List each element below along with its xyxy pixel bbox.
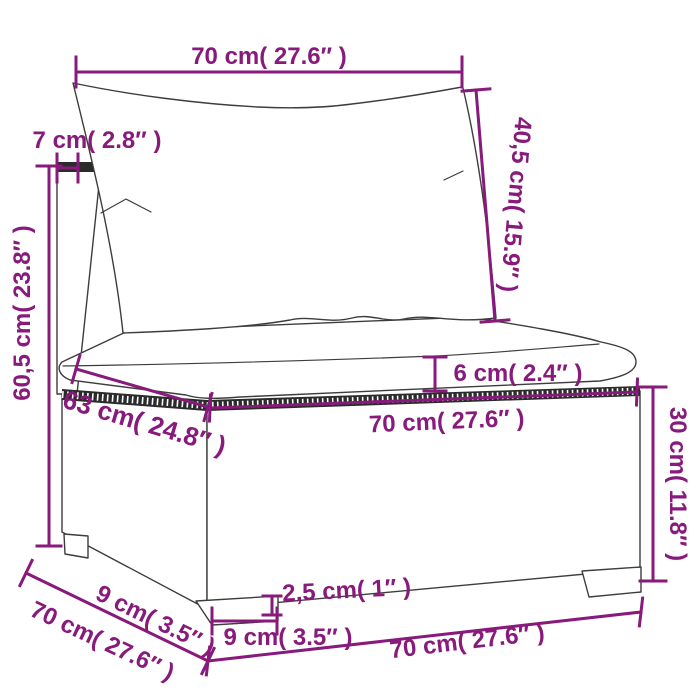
label-top-width: 70 cm( 27.6″ ) xyxy=(191,43,347,70)
back-cushion xyxy=(73,83,496,333)
label-seat-cushion-thickness: 6 cm( 2.4″ ) xyxy=(454,360,583,387)
label-back-cushion-length: 40,5 cm( 15.9″ ) xyxy=(494,116,536,293)
label-overall-height: 60,5 cm( 23.8″ ) xyxy=(9,225,36,401)
sofa-dimensions-figure: 70 cm( 27.6″ ) 7 cm( 2.8″ ) 60,5 cm( 23.… xyxy=(0,0,700,700)
foot-front-right xyxy=(582,567,641,597)
label-foot-height: 2,5 cm( 1″ ) xyxy=(282,574,412,608)
label-back-post-depth: 7 cm( 2.8″ ) xyxy=(33,127,162,154)
foot-back-left xyxy=(64,534,88,558)
label-front-width-bottom: 70 cm( 27.6″ ) xyxy=(388,619,546,664)
label-base-height: 30 cm( 11.8″ ) xyxy=(664,407,691,561)
product-dimension-diagram: 70 cm( 27.6″ ) 7 cm( 2.8″ ) 60,5 cm( 23.… xyxy=(0,0,700,700)
dim-base-height xyxy=(640,387,666,581)
sofa-line-art xyxy=(56,83,641,625)
